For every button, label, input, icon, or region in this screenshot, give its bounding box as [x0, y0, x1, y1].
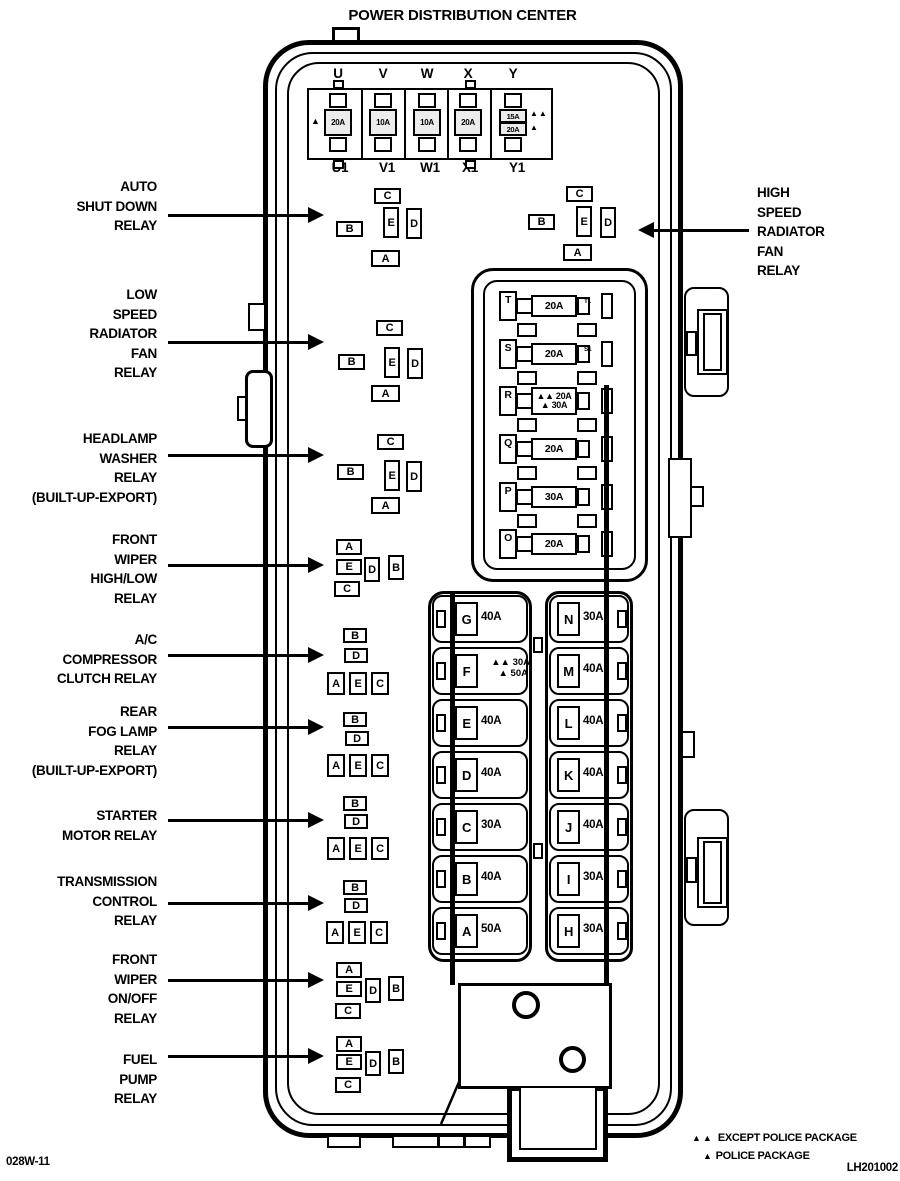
relay-pad-rear-fog-lamp-relay-D: D	[345, 731, 369, 746]
bottom-edge-tab-divider	[437, 1135, 440, 1148]
fuse-amp-line: ▲▲ 30A	[491, 658, 530, 669]
inter-column-nub	[533, 843, 543, 859]
relay-pad-starter-motor-relay-C: C	[371, 837, 389, 860]
callout-line: LOW	[0, 285, 157, 305]
fuse-sub-label: T1	[584, 298, 591, 305]
package-marker-icon: ▲▲	[530, 109, 548, 118]
arrow-line-front-wiper-on-off-relay	[168, 979, 309, 982]
fuse-cavity-label: O	[499, 529, 517, 559]
fuse-terminal-top	[459, 93, 477, 108]
top-fuse-panel-divider	[447, 90, 449, 158]
callout-starter-motor-relay: STARTERMOTOR RELAY	[0, 806, 157, 845]
arrow-head-low-speed-radiator-fan-relay	[308, 334, 324, 350]
callout-front-wiper-high-low-relay: FRONTWIPERHIGH/LOWRELAY	[0, 530, 157, 608]
arrow-head-rear-fog-lamp-relay	[308, 719, 324, 735]
callout-line: FOG LAMP	[0, 722, 157, 742]
arrow-head-ac-compressor-clutch-relay	[308, 647, 324, 663]
fuse-cavity-label: S	[499, 339, 517, 369]
callout-line: WIPER	[0, 550, 157, 570]
callout-line: SPEED	[0, 305, 157, 325]
relay-pad-ac-compressor-clutch-relay-D: D	[344, 648, 368, 663]
fuse-terminal-bottom	[504, 137, 522, 152]
fuse-column-label: Y1	[498, 160, 536, 175]
relay-pad-fuel-pump-relay-C: C	[335, 1077, 361, 1093]
fuse-cavity-label: A	[455, 914, 478, 948]
callout-rear-fog-lamp-relay: REARFOG LAMPRELAY(BUILT-UP-EXPORT)	[0, 702, 157, 780]
callout-line: RELAY	[757, 261, 897, 281]
callout-line: RELAY	[0, 911, 157, 931]
fuse-cavity-label: Q	[499, 434, 517, 464]
callout-line: ON/OFF	[0, 989, 157, 1009]
fuse-sub-label: S1	[584, 346, 591, 353]
relay-pad-headlamp-washer-relay-A: A	[371, 497, 400, 514]
fuse-stub	[617, 662, 627, 680]
figure-code-left: 028W-11	[6, 1156, 50, 1168]
relay-pad-transmission-control-relay-B: B	[343, 880, 367, 895]
relay-pad-transmission-control-relay-D: D	[344, 898, 368, 913]
fuse-column-label: W1	[411, 160, 449, 175]
relay-pad-fuel-pump-relay-B: B	[388, 1049, 404, 1074]
fuse-body: 20A	[454, 109, 482, 136]
top-fuse-panel-divider	[490, 90, 492, 158]
callout-line: AUTO	[0, 177, 157, 197]
fuse-panel-pin	[465, 160, 476, 169]
callout-line: RADIATOR	[757, 222, 897, 242]
relay-pad-front-wiper-on-off-relay-D: D	[365, 978, 381, 1003]
callout-line: SHUT DOWN	[0, 197, 157, 217]
inter-row-terminal	[577, 418, 597, 432]
fuse-amp: 50A	[481, 923, 501, 935]
fuse-cavity-label: J	[557, 810, 580, 844]
fuse-cavity-label: G	[455, 602, 478, 636]
legend-label: POLICE PACKAGE	[716, 1150, 810, 1162]
fuse-amp: 30A	[583, 611, 603, 623]
callout-line: RELAY	[0, 468, 157, 488]
callout-line: STARTER	[0, 806, 157, 826]
callout-line: (BUILT-UP-EXPORT)	[0, 761, 157, 781]
callout-line: FAN	[0, 344, 157, 364]
fuse-cavity-label: C	[455, 810, 478, 844]
relay-pad-front-wiper-high-low-relay-C: C	[334, 581, 360, 597]
fuse-stub	[617, 714, 627, 732]
inter-row-terminal	[517, 371, 537, 385]
callout-line: PUMP	[0, 1070, 157, 1090]
callout-low-speed-radiator-fan-relay: LOWSPEEDRADIATORFANRELAY	[0, 285, 157, 383]
fuse-body: ▲▲ 20A▲ 30A	[531, 387, 577, 415]
relay-pad-front-wiper-high-low-relay-D: D	[364, 557, 380, 582]
fuse-amp-line: ▲ 50A	[499, 669, 530, 680]
fuse-stub	[617, 922, 627, 940]
callout-fuel-pump-relay: FUELPUMPRELAY	[0, 1050, 157, 1109]
callout-headlamp-washer-relay: HEADLAMPWASHERRELAY(BUILT-UP-EXPORT)	[0, 429, 157, 507]
pdc-right-connector-bottom-slot	[703, 841, 722, 904]
arrow-line-transmission-control-relay	[168, 902, 309, 905]
fuse-terminal-bottom	[374, 137, 392, 152]
relay-pad-front-wiper-on-off-relay-A: A	[336, 962, 362, 978]
callout-line: RELAY	[0, 741, 157, 761]
relay-pad-ac-compressor-clutch-relay-B: B	[343, 628, 367, 643]
fuse-bracket	[601, 293, 613, 319]
fuse-cell	[432, 855, 528, 903]
relay-pad-starter-motor-relay-E: E	[349, 837, 367, 860]
relay-pad-front-wiper-high-low-relay-E: E	[336, 559, 362, 575]
relay-pad-transmission-control-relay-C: C	[370, 921, 388, 944]
callout-line: RELAY	[0, 589, 157, 609]
relay-pad-rear-fog-lamp-relay-C: C	[371, 754, 389, 777]
fuse-stub	[617, 766, 627, 784]
relay-pad-high-speed-radiator-fan-relay-A: A	[563, 244, 592, 261]
fuse-cavity-label: I	[557, 862, 580, 896]
callout-line: A/C	[0, 630, 157, 650]
relay-pad-rear-fog-lamp-relay-B: B	[343, 712, 367, 727]
callout-line: HIGH/LOW	[0, 569, 157, 589]
arrow-head-headlamp-washer-relay	[308, 447, 324, 463]
fuse-column-label: X	[451, 66, 485, 81]
bus-bar-right	[604, 385, 609, 985]
top-fuse-panel-divider	[404, 90, 406, 158]
fuse-cavity-label: M	[557, 654, 580, 688]
relay-pad-high-speed-radiator-fan-relay-E: E	[576, 206, 592, 237]
package-marker-icon: ▲	[311, 116, 320, 126]
fuse-body: 20A	[531, 533, 577, 555]
fuse-column-label: V1	[368, 160, 406, 175]
fuse-body: 10A	[413, 109, 441, 136]
relay-pad-low-speed-radiator-fan-relay-B: B	[338, 354, 365, 370]
fuse-amp: 40A	[481, 871, 501, 883]
fuse-cavity-label: B	[455, 862, 478, 896]
arrow-line-starter-motor-relay	[168, 819, 309, 822]
arrow-head-starter-motor-relay	[308, 812, 324, 828]
callout-line: RELAY	[0, 216, 157, 236]
fuse-stub	[617, 610, 627, 628]
fuse-stub	[436, 818, 446, 836]
fuse-body: 10A	[369, 109, 397, 136]
fuse-stub	[577, 392, 590, 410]
fuse-panel-pin	[333, 160, 344, 169]
relay-pad-starter-motor-relay-D: D	[344, 814, 368, 829]
legend-police-package: ▲POLICE PACKAGE	[703, 1150, 810, 1162]
relay-pad-rear-fog-lamp-relay-A: A	[327, 754, 345, 777]
relay-pad-fuel-pump-relay-D: D	[365, 1051, 381, 1076]
callout-line: CONTROL	[0, 892, 157, 912]
fuse-terminal-bottom	[329, 137, 347, 152]
fuse-body: 30A	[531, 486, 577, 508]
fuse-amp: ▲▲ 30A▲ 50A	[478, 658, 530, 679]
arrow-line-high-speed-radiator-fan-relay	[654, 229, 749, 232]
fuse-amp: 40A	[583, 819, 603, 831]
callout-transmission-control-relay: TRANSMISSIONCONTROLRELAY	[0, 872, 157, 931]
callout-line: RELAY	[0, 363, 157, 383]
fuse-terminal-top	[504, 93, 522, 108]
callout-ac-compressor-clutch-relay: A/CCOMPRESSORCLUTCH RELAY	[0, 630, 157, 689]
relay-pad-fuel-pump-relay-A: A	[336, 1036, 362, 1052]
legend-label: EXCEPT POLICE PACKAGE	[718, 1132, 857, 1144]
pdc-right-connector-bottom-nub	[686, 857, 697, 883]
fuse-panel-pin	[333, 80, 344, 89]
callout-front-wiper-on-off-relay: FRONTWIPERON/OFFRELAY	[0, 950, 157, 1028]
inter-column-nub	[533, 637, 543, 653]
relay-pad-headlamp-washer-relay-D: D	[406, 461, 422, 492]
pdc-left-small-tab	[248, 303, 266, 331]
relay-pad-transmission-control-relay-E: E	[348, 921, 366, 944]
fuse-amp: 40A	[481, 715, 501, 727]
mounting-hole-top	[512, 991, 540, 1019]
fuse-cavity-label: N	[557, 602, 580, 636]
mounting-hole-bottom	[559, 1046, 586, 1073]
fuse-column-label: V	[366, 66, 400, 81]
relay-pad-auto-shut-down-relay-D: D	[406, 208, 422, 239]
relay-pad-auto-shut-down-relay-B: B	[336, 221, 363, 237]
arrow-head-fuel-pump-relay	[308, 1048, 324, 1064]
fuse-cavity-label: F	[455, 654, 478, 688]
bottom-diagonal-edge	[435, 1078, 465, 1128]
fuse-terminal-top	[374, 93, 392, 108]
relay-pad-auto-shut-down-relay-C: C	[374, 188, 401, 204]
inter-row-terminal	[517, 418, 537, 432]
pdc-right-connector-top-nub	[686, 331, 697, 356]
arrow-head-front-wiper-on-off-relay	[308, 972, 324, 988]
relay-pad-ac-compressor-clutch-relay-A: A	[327, 672, 345, 695]
fuse-column-label: W	[410, 66, 444, 81]
fuse-cavity-label: R	[499, 386, 517, 416]
callout-line: SPEED	[757, 203, 897, 223]
relay-pad-front-wiper-on-off-relay-C: C	[335, 1003, 361, 1019]
fuse-stub	[577, 488, 590, 506]
callout-line: RADIATOR	[0, 324, 157, 344]
two-triangles-icon: ▲▲	[692, 1133, 714, 1143]
fuse-body: 15A	[499, 109, 527, 123]
fuse-panel-pin	[465, 80, 476, 89]
callout-line: WIPER	[0, 970, 157, 990]
bottom-connector-tab-inner	[519, 1086, 597, 1150]
fuse-stub	[436, 870, 446, 888]
fuse-cavity-label: L	[557, 706, 580, 740]
power-distribution-center-diagram: POWER DISTRIBUTION CENTER ▲▲EXCEPT POLIC…	[0, 0, 900, 1181]
fuse-amp: 30A	[481, 819, 501, 831]
callout-line: COMPRESSOR	[0, 650, 157, 670]
relay-pad-fuel-pump-relay-E: E	[336, 1054, 362, 1070]
relay-pad-auto-shut-down-relay-E: E	[383, 207, 399, 238]
arrow-head-high-speed-radiator-fan-relay	[638, 222, 654, 238]
relay-pad-rear-fog-lamp-relay-E: E	[349, 754, 367, 777]
figure-code-right: LH201002	[840, 1162, 898, 1174]
inter-row-terminal	[577, 371, 597, 385]
fuse-cell	[432, 803, 528, 851]
callout-line: FUEL	[0, 1050, 157, 1070]
relay-pad-starter-motor-relay-B: B	[343, 796, 367, 811]
mid-fuse-panel-inner	[483, 280, 636, 570]
fuse-cavity-label: H	[557, 914, 580, 948]
fuse-amp: 40A	[481, 611, 501, 623]
relay-pad-headlamp-washer-relay-C: C	[377, 434, 404, 450]
top-fuse-panel-divider	[361, 90, 363, 158]
callout-line: HIGH	[757, 183, 897, 203]
inter-row-terminal	[517, 323, 537, 337]
inter-row-terminal	[517, 466, 537, 480]
relay-pad-high-speed-radiator-fan-relay-D: D	[600, 207, 616, 238]
legend-except-police-package: ▲▲EXCEPT POLICE PACKAGE	[692, 1132, 857, 1144]
arrow-line-auto-shut-down-relay	[168, 214, 309, 217]
fuse-bracket	[601, 341, 613, 367]
fuse-terminal-bottom	[459, 137, 477, 152]
arrow-head-auto-shut-down-relay	[308, 207, 324, 223]
fuse-stub	[577, 440, 590, 458]
bottom-edge-tab-divider	[463, 1135, 466, 1148]
pdc-right-mid-tab	[681, 731, 695, 758]
relay-pad-headlamp-washer-relay-E: E	[384, 460, 400, 491]
relay-pad-low-speed-radiator-fan-relay-D: D	[407, 348, 423, 379]
fuse-cavity-label: D	[455, 758, 478, 792]
arrow-line-front-wiper-high-low-relay	[168, 564, 309, 567]
relay-pad-starter-motor-relay-A: A	[327, 837, 345, 860]
arrow-line-low-speed-radiator-fan-relay	[168, 341, 309, 344]
callout-line: RELAY	[0, 1009, 157, 1029]
relay-pad-high-speed-radiator-fan-relay-B: B	[528, 214, 555, 230]
arrow-line-ac-compressor-clutch-relay	[168, 654, 309, 657]
callout-line: REAR	[0, 702, 157, 722]
fuse-terminal-top	[329, 93, 347, 108]
fuse-cell	[432, 699, 528, 747]
relay-pad-low-speed-radiator-fan-relay-A: A	[371, 385, 400, 402]
callout-line: FAN	[757, 242, 897, 262]
fuse-cell	[432, 907, 528, 955]
fuse-terminal-bottom	[418, 137, 436, 152]
arrow-head-transmission-control-relay	[308, 895, 324, 911]
relay-pad-ac-compressor-clutch-relay-C: C	[371, 672, 389, 695]
relay-pad-front-wiper-high-low-relay-B: B	[388, 555, 404, 580]
pdc-left-large-tab	[245, 370, 273, 448]
callout-high-speed-radiator-fan-relay: HIGHSPEEDRADIATORFANRELAY	[757, 183, 897, 281]
fuse-amp: 40A	[583, 663, 603, 675]
fuse-cavity-label: T	[499, 291, 517, 321]
fuse-stub	[436, 610, 446, 628]
arrow-line-rear-fog-lamp-relay	[168, 726, 309, 729]
relay-pad-headlamp-washer-relay-B: B	[337, 464, 364, 480]
relay-pad-ac-compressor-clutch-relay-E: E	[349, 672, 367, 695]
pdc-right-small-tab-nub	[690, 486, 704, 507]
one-triangle-icon: ▲	[703, 1151, 712, 1161]
relay-pad-front-wiper-on-off-relay-B: B	[388, 976, 404, 1001]
arrow-line-fuel-pump-relay	[168, 1055, 309, 1058]
package-marker-icon: ▲	[530, 123, 538, 132]
bus-bar-left	[450, 591, 455, 985]
fuse-stub	[436, 922, 446, 940]
callout-line: CLUTCH RELAY	[0, 669, 157, 689]
fuse-body: 20A	[531, 438, 577, 460]
fuse-amp: 40A	[583, 715, 603, 727]
callout-line: MOTOR RELAY	[0, 826, 157, 846]
arrow-head-front-wiper-high-low-relay	[308, 557, 324, 573]
fuse-cavity-label: P	[499, 482, 517, 512]
callout-line: WASHER	[0, 449, 157, 469]
fuse-body: 20A	[324, 109, 352, 136]
fuse-cell	[432, 595, 528, 643]
fuse-cell	[432, 751, 528, 799]
fuse-stub	[617, 818, 627, 836]
callout-line: FRONT	[0, 950, 157, 970]
relay-pad-low-speed-radiator-fan-relay-E: E	[384, 347, 400, 378]
relay-pad-front-wiper-high-low-relay-A: A	[336, 539, 362, 555]
bottom-edge-tab-2	[392, 1135, 491, 1148]
fuse-stub	[436, 766, 446, 784]
relay-pad-transmission-control-relay-A: A	[326, 921, 344, 944]
inter-row-terminal	[577, 514, 597, 528]
callout-line: (BUILT-UP-EXPORT)	[0, 488, 157, 508]
relay-pad-auto-shut-down-relay-A: A	[371, 250, 400, 267]
callout-line: HEADLAMP	[0, 429, 157, 449]
fuse-amp: 40A	[481, 767, 501, 779]
fuse-body: 20A	[531, 295, 577, 317]
fuse-stub	[617, 870, 627, 888]
page-title: POWER DISTRIBUTION CENTER	[290, 7, 635, 24]
fuse-stub	[577, 535, 590, 553]
inter-row-terminal	[517, 514, 537, 528]
relay-pad-front-wiper-on-off-relay-E: E	[336, 981, 362, 997]
inter-row-terminal	[577, 466, 597, 480]
fuse-amp: 40A	[583, 767, 603, 779]
fuse-column-label: Y	[496, 66, 530, 81]
callout-line: TRANSMISSION	[0, 872, 157, 892]
fuse-cavity-label: E	[455, 706, 478, 740]
fuse-cavity-label: K	[557, 758, 580, 792]
callout-auto-shut-down-relay: AUTOSHUT DOWNRELAY	[0, 177, 157, 236]
relay-pad-high-speed-radiator-fan-relay-C: C	[566, 186, 593, 202]
arrow-line-headlamp-washer-relay	[168, 454, 309, 457]
fuse-amp: 30A	[583, 871, 603, 883]
fuse-stub	[436, 714, 446, 732]
fuse-amp: 30A	[583, 923, 603, 935]
fuse-column-label: U	[321, 66, 355, 81]
fuse-stub	[436, 662, 446, 680]
relay-pad-low-speed-radiator-fan-relay-C: C	[376, 320, 403, 336]
bottom-edge-tab-1	[327, 1135, 361, 1148]
pdc-right-connector-top-slot	[703, 313, 722, 371]
callout-line: RELAY	[0, 1089, 157, 1109]
pdc-right-small-tab	[668, 458, 692, 538]
fuse-terminal-top	[418, 93, 436, 108]
fuse-body: 20A	[531, 343, 577, 365]
inter-row-terminal	[577, 323, 597, 337]
fuse-amp-line: ▲ 30A	[541, 401, 567, 411]
fuse-body: 20A	[499, 122, 527, 136]
callout-line: FRONT	[0, 530, 157, 550]
